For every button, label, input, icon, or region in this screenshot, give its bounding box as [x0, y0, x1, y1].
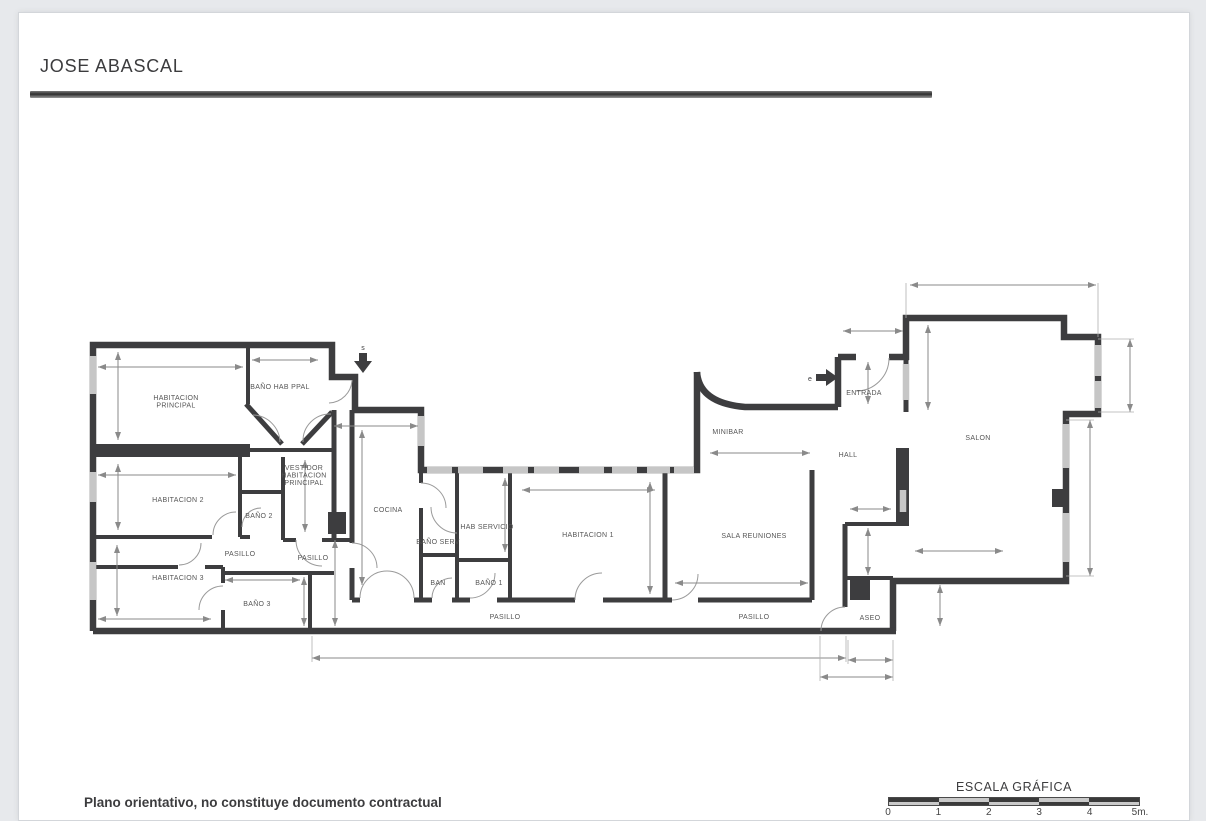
room-label-bano-2: BAÑO 2 [245, 511, 272, 520]
room-label-habitacion-1: HABITACION 1 [562, 532, 614, 539]
room-label-entrada: ENTRADA [846, 390, 882, 397]
floor-plan: s e HABITACIONPRINCIPALBAÑO HAB PPALVEST… [0, 0, 1206, 821]
room-label-habitacion-principal: HABITACIONPRINCIPAL [153, 395, 198, 410]
room-label-pasillo-centro: PASILLO [490, 614, 521, 621]
room-label-pasillo-dcha: PASILLO [739, 614, 770, 621]
room-label-salon: SALON [965, 435, 990, 442]
scale-segment [1089, 798, 1139, 805]
scale-segment [939, 798, 989, 805]
room-label-bano-serv: BAÑO SERV [416, 537, 459, 546]
room-label-hab-servicio: HAB SERVICIO [460, 524, 514, 531]
room-label-hall: HALL [839, 452, 858, 459]
room-label-cocina: COCINA [373, 507, 402, 514]
room-label-bano-1: BAÑO 1 [475, 578, 502, 587]
graphic-scale-title: ESCALA GRÁFICA [888, 780, 1140, 794]
scale-segment [1039, 798, 1089, 805]
entrance-markers: s e [354, 345, 838, 386]
service-entrance-letter: s [361, 345, 365, 352]
room-label-habitacion-2: HABITACION 2 [152, 497, 204, 504]
main-entrance-arrow-icon [816, 369, 838, 386]
room-label-pasillo-izq-2: PASILLO [298, 555, 329, 562]
service-entrance-arrow-icon [354, 353, 372, 373]
main-entrance-letter: e [808, 376, 812, 383]
door-arcs [179, 358, 889, 631]
room-label-bano-hab-ppal: BAÑO HAB PPAL [250, 382, 309, 391]
interior-walls [93, 345, 1066, 631]
graphic-scale: ESCALA GRÁFICA 0 1 2 3 4 5m. [888, 780, 1140, 820]
scale-segment [989, 798, 1039, 805]
room-label-bano-3: BAÑO 3 [243, 599, 270, 608]
scale-tick-labels: 0 1 2 3 4 5m. [888, 807, 1140, 820]
scale-tick: 0 [885, 807, 891, 818]
scale-tick: 4 [1087, 807, 1093, 818]
room-label-aseo: ASEO [860, 615, 881, 622]
scale-tick: 5m. [1132, 807, 1149, 818]
graphic-scale-bar [888, 797, 1140, 806]
footer-disclaimer: Plano orientativo, no constituye documen… [84, 795, 442, 810]
room-label-habitacion-3: HABITACION 3 [152, 575, 204, 582]
scale-segment [889, 798, 939, 805]
room-label-vestidor-habitacion-principal: VESTIDORHABITACIONPRINCIPAL [281, 465, 326, 487]
scale-tick: 1 [936, 807, 942, 818]
exterior-walls [93, 318, 1098, 631]
room-label-minibar: MINIBAR [712, 429, 743, 436]
windows [93, 345, 1098, 600]
room-label-pasillo-izq-1: PASILLO [225, 551, 256, 558]
scale-tick: 2 [986, 807, 992, 818]
scale-tick: 3 [1036, 807, 1042, 818]
room-label-ban: BAN [430, 580, 445, 587]
room-label-sala-reuniones: SALA REUNIONES [721, 533, 786, 540]
